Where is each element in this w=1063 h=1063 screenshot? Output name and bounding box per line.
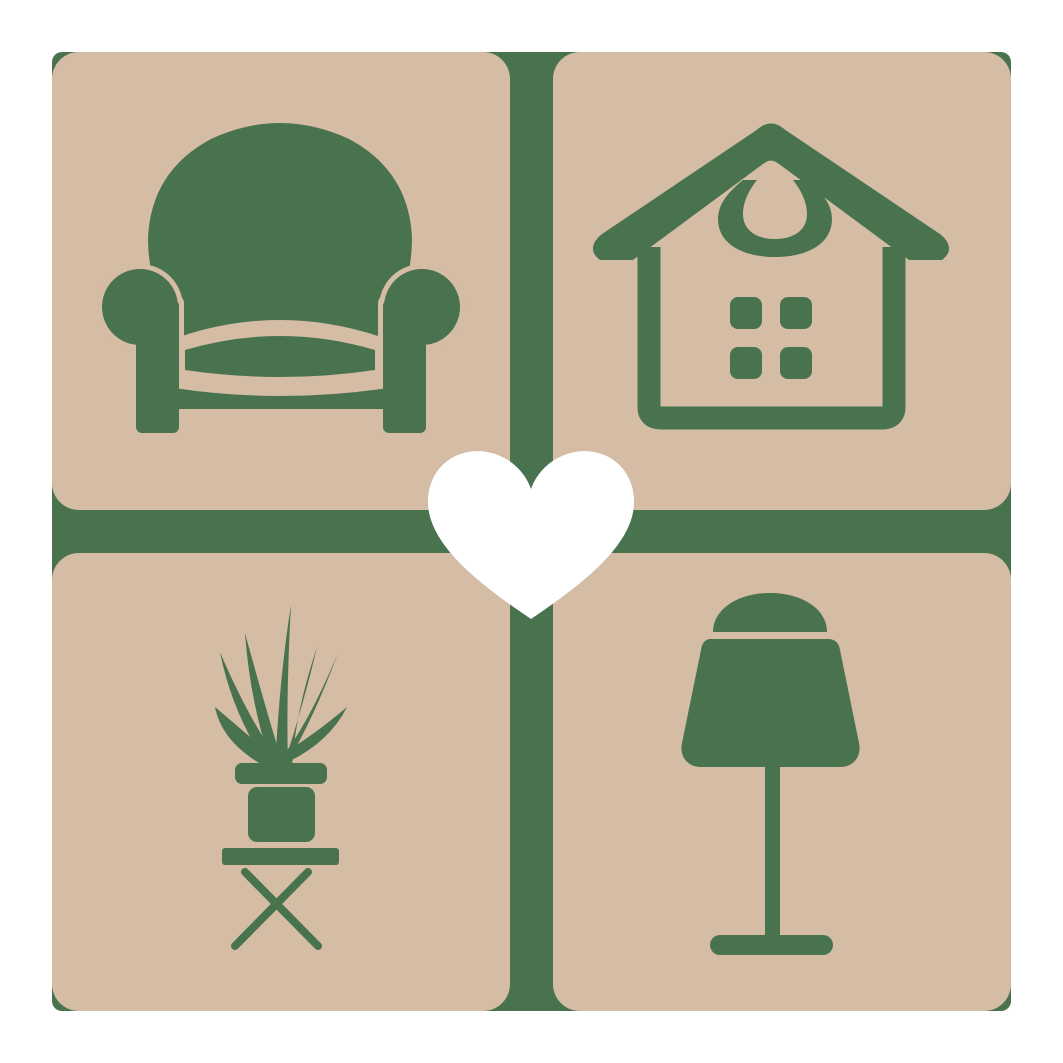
logo-canvas — [0, 0, 1063, 1063]
tile-bottom-right — [553, 553, 1011, 1011]
tile-top-left — [52, 52, 510, 510]
armchair-back — [148, 123, 412, 336]
window-pane — [780, 297, 812, 329]
lamp-stem — [765, 758, 780, 941]
tile-top-right — [553, 52, 1011, 510]
lamp-shade — [681, 639, 859, 767]
home-decor-logo — [0, 0, 1063, 1063]
tile-bottom-left — [52, 553, 510, 1011]
window-pane — [730, 347, 762, 379]
tile-background — [553, 52, 1011, 510]
pot-body — [248, 787, 315, 842]
pot-rim — [235, 763, 327, 784]
armchair-leg-right — [383, 300, 426, 433]
lamp-base — [710, 935, 833, 955]
stool-top — [222, 848, 339, 865]
window-pane — [780, 347, 812, 379]
window-pane — [730, 297, 762, 329]
armchair-leg-left — [136, 300, 179, 433]
